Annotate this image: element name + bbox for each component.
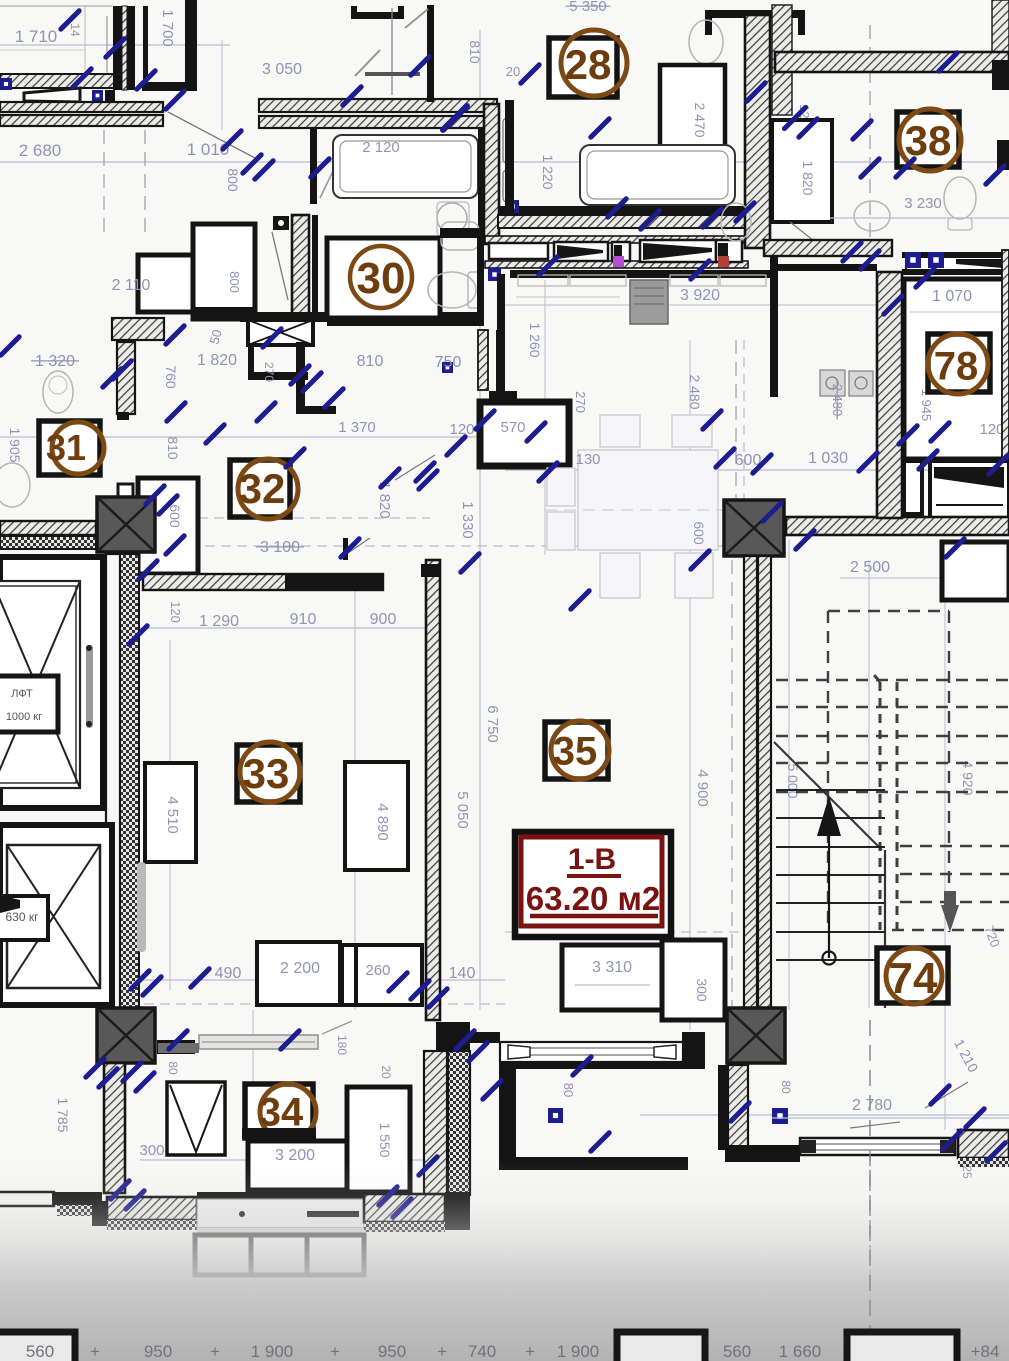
svg-text:900: 900 <box>370 611 397 628</box>
svg-text:38: 38 <box>905 117 952 164</box>
svg-text:1000 кг: 1000 кг <box>6 711 42 723</box>
svg-text:6 750: 6 750 <box>484 705 501 743</box>
svg-text:1 710: 1 710 <box>15 27 58 46</box>
svg-text:1 260: 1 260 <box>527 322 543 357</box>
svg-text:3 230: 3 230 <box>904 195 942 212</box>
svg-text:810: 810 <box>467 40 483 64</box>
svg-text:600: 600 <box>167 504 183 528</box>
svg-text:760: 760 <box>163 365 179 389</box>
svg-text:1 330: 1 330 <box>459 501 476 539</box>
svg-text:2 470: 2 470 <box>692 102 708 137</box>
svg-text:3 100: 3 100 <box>260 539 300 556</box>
svg-text:300: 300 <box>139 1142 164 1159</box>
svg-text:74: 74 <box>889 954 938 1003</box>
svg-text:1 900: 1 900 <box>251 1342 294 1361</box>
svg-text:80: 80 <box>166 1061 180 1075</box>
svg-text:1 660: 1 660 <box>779 1342 822 1361</box>
svg-text:800: 800 <box>225 168 241 192</box>
svg-text:2 480: 2 480 <box>687 374 703 409</box>
svg-text:2 500: 2 500 <box>850 559 890 576</box>
svg-text:560: 560 <box>723 1342 751 1361</box>
svg-text:+: + <box>210 1342 220 1361</box>
svg-text:14: 14 <box>68 23 82 37</box>
svg-text:4 900: 4 900 <box>694 769 711 807</box>
svg-text:1 900: 1 900 <box>557 1342 600 1361</box>
svg-text:1 905: 1 905 <box>7 427 23 462</box>
svg-text:33: 33 <box>243 750 290 797</box>
svg-text:1 785: 1 785 <box>55 1097 71 1132</box>
svg-text:78: 78 <box>934 344 979 388</box>
svg-text:5 050: 5 050 <box>454 791 471 829</box>
svg-text:5 000: 5 000 <box>785 763 801 798</box>
svg-text:+: + <box>437 1342 447 1361</box>
svg-text:3 310: 3 310 <box>592 959 632 976</box>
svg-text:1 320: 1 320 <box>35 353 75 370</box>
svg-text:4 890: 4 890 <box>374 803 391 841</box>
svg-text:120: 120 <box>979 421 1004 438</box>
svg-text:810: 810 <box>357 353 384 370</box>
svg-text:130: 130 <box>575 451 600 468</box>
svg-text:35: 35 <box>553 729 598 773</box>
svg-text:740: 740 <box>468 1342 496 1361</box>
svg-text:490: 490 <box>215 965 242 982</box>
svg-text:63.20 м2: 63.20 м2 <box>526 880 661 917</box>
svg-text:300: 300 <box>694 978 710 1002</box>
svg-text:28: 28 <box>565 41 612 88</box>
svg-text:1 070: 1 070 <box>932 288 972 305</box>
svg-text:+: + <box>330 1342 340 1361</box>
svg-text:1 550: 1 550 <box>377 1122 393 1157</box>
svg-text:1 820: 1 820 <box>800 160 816 195</box>
svg-text:910: 910 <box>290 611 317 628</box>
svg-text:630 кг: 630 кг <box>6 910 40 924</box>
svg-text:80: 80 <box>561 1083 576 1097</box>
svg-text:1 220: 1 220 <box>540 154 556 189</box>
svg-text:950: 950 <box>144 1342 172 1361</box>
svg-text:ЛФТ: ЛФТ <box>11 688 33 700</box>
svg-text:+: + <box>525 1342 535 1361</box>
svg-text:34: 34 <box>259 1090 304 1134</box>
svg-text:31: 31 <box>46 427 86 468</box>
svg-text:1-В: 1-В <box>568 843 616 876</box>
svg-text:2 120: 2 120 <box>362 139 400 156</box>
svg-text:810: 810 <box>165 436 181 460</box>
svg-text:32: 32 <box>239 465 286 512</box>
svg-text:600: 600 <box>691 521 707 545</box>
svg-text:270: 270 <box>573 391 588 413</box>
svg-text:950: 950 <box>378 1342 406 1361</box>
svg-text:120: 120 <box>449 421 474 438</box>
svg-text:180: 180 <box>335 1035 349 1055</box>
svg-text:1 290: 1 290 <box>199 613 239 630</box>
svg-text:20: 20 <box>379 1065 393 1079</box>
svg-text:2 780: 2 780 <box>852 1097 892 1114</box>
svg-text:4 510: 4 510 <box>164 796 181 834</box>
svg-text:5 350: 5 350 <box>569 0 607 15</box>
svg-text:570: 570 <box>500 419 525 436</box>
svg-text:1 030: 1 030 <box>808 450 848 467</box>
svg-text:+84: +84 <box>971 1342 1000 1361</box>
svg-text:2 680: 2 680 <box>19 141 62 160</box>
svg-text:1 820: 1 820 <box>197 352 237 369</box>
svg-text:750: 750 <box>435 354 462 371</box>
svg-text:3 050: 3 050 <box>262 61 302 78</box>
svg-text:140: 140 <box>449 965 476 982</box>
svg-text:30: 30 <box>357 254 406 303</box>
svg-text:2 200: 2 200 <box>280 960 320 977</box>
svg-text:20: 20 <box>506 64 520 79</box>
svg-text:4 920: 4 920 <box>960 760 976 795</box>
svg-text:800: 800 <box>227 271 242 293</box>
svg-text:270: 270 <box>262 362 276 382</box>
svg-text:1 700: 1 700 <box>159 9 176 47</box>
svg-text:1 370: 1 370 <box>338 419 376 436</box>
svg-text:80: 80 <box>779 1080 793 1094</box>
svg-text:560: 560 <box>26 1342 54 1361</box>
svg-text:2 110: 2 110 <box>112 277 151 294</box>
svg-text:3 920: 3 920 <box>680 287 720 304</box>
svg-text:120: 120 <box>168 601 183 623</box>
svg-text:260: 260 <box>365 962 390 979</box>
svg-text:+: + <box>90 1342 100 1361</box>
